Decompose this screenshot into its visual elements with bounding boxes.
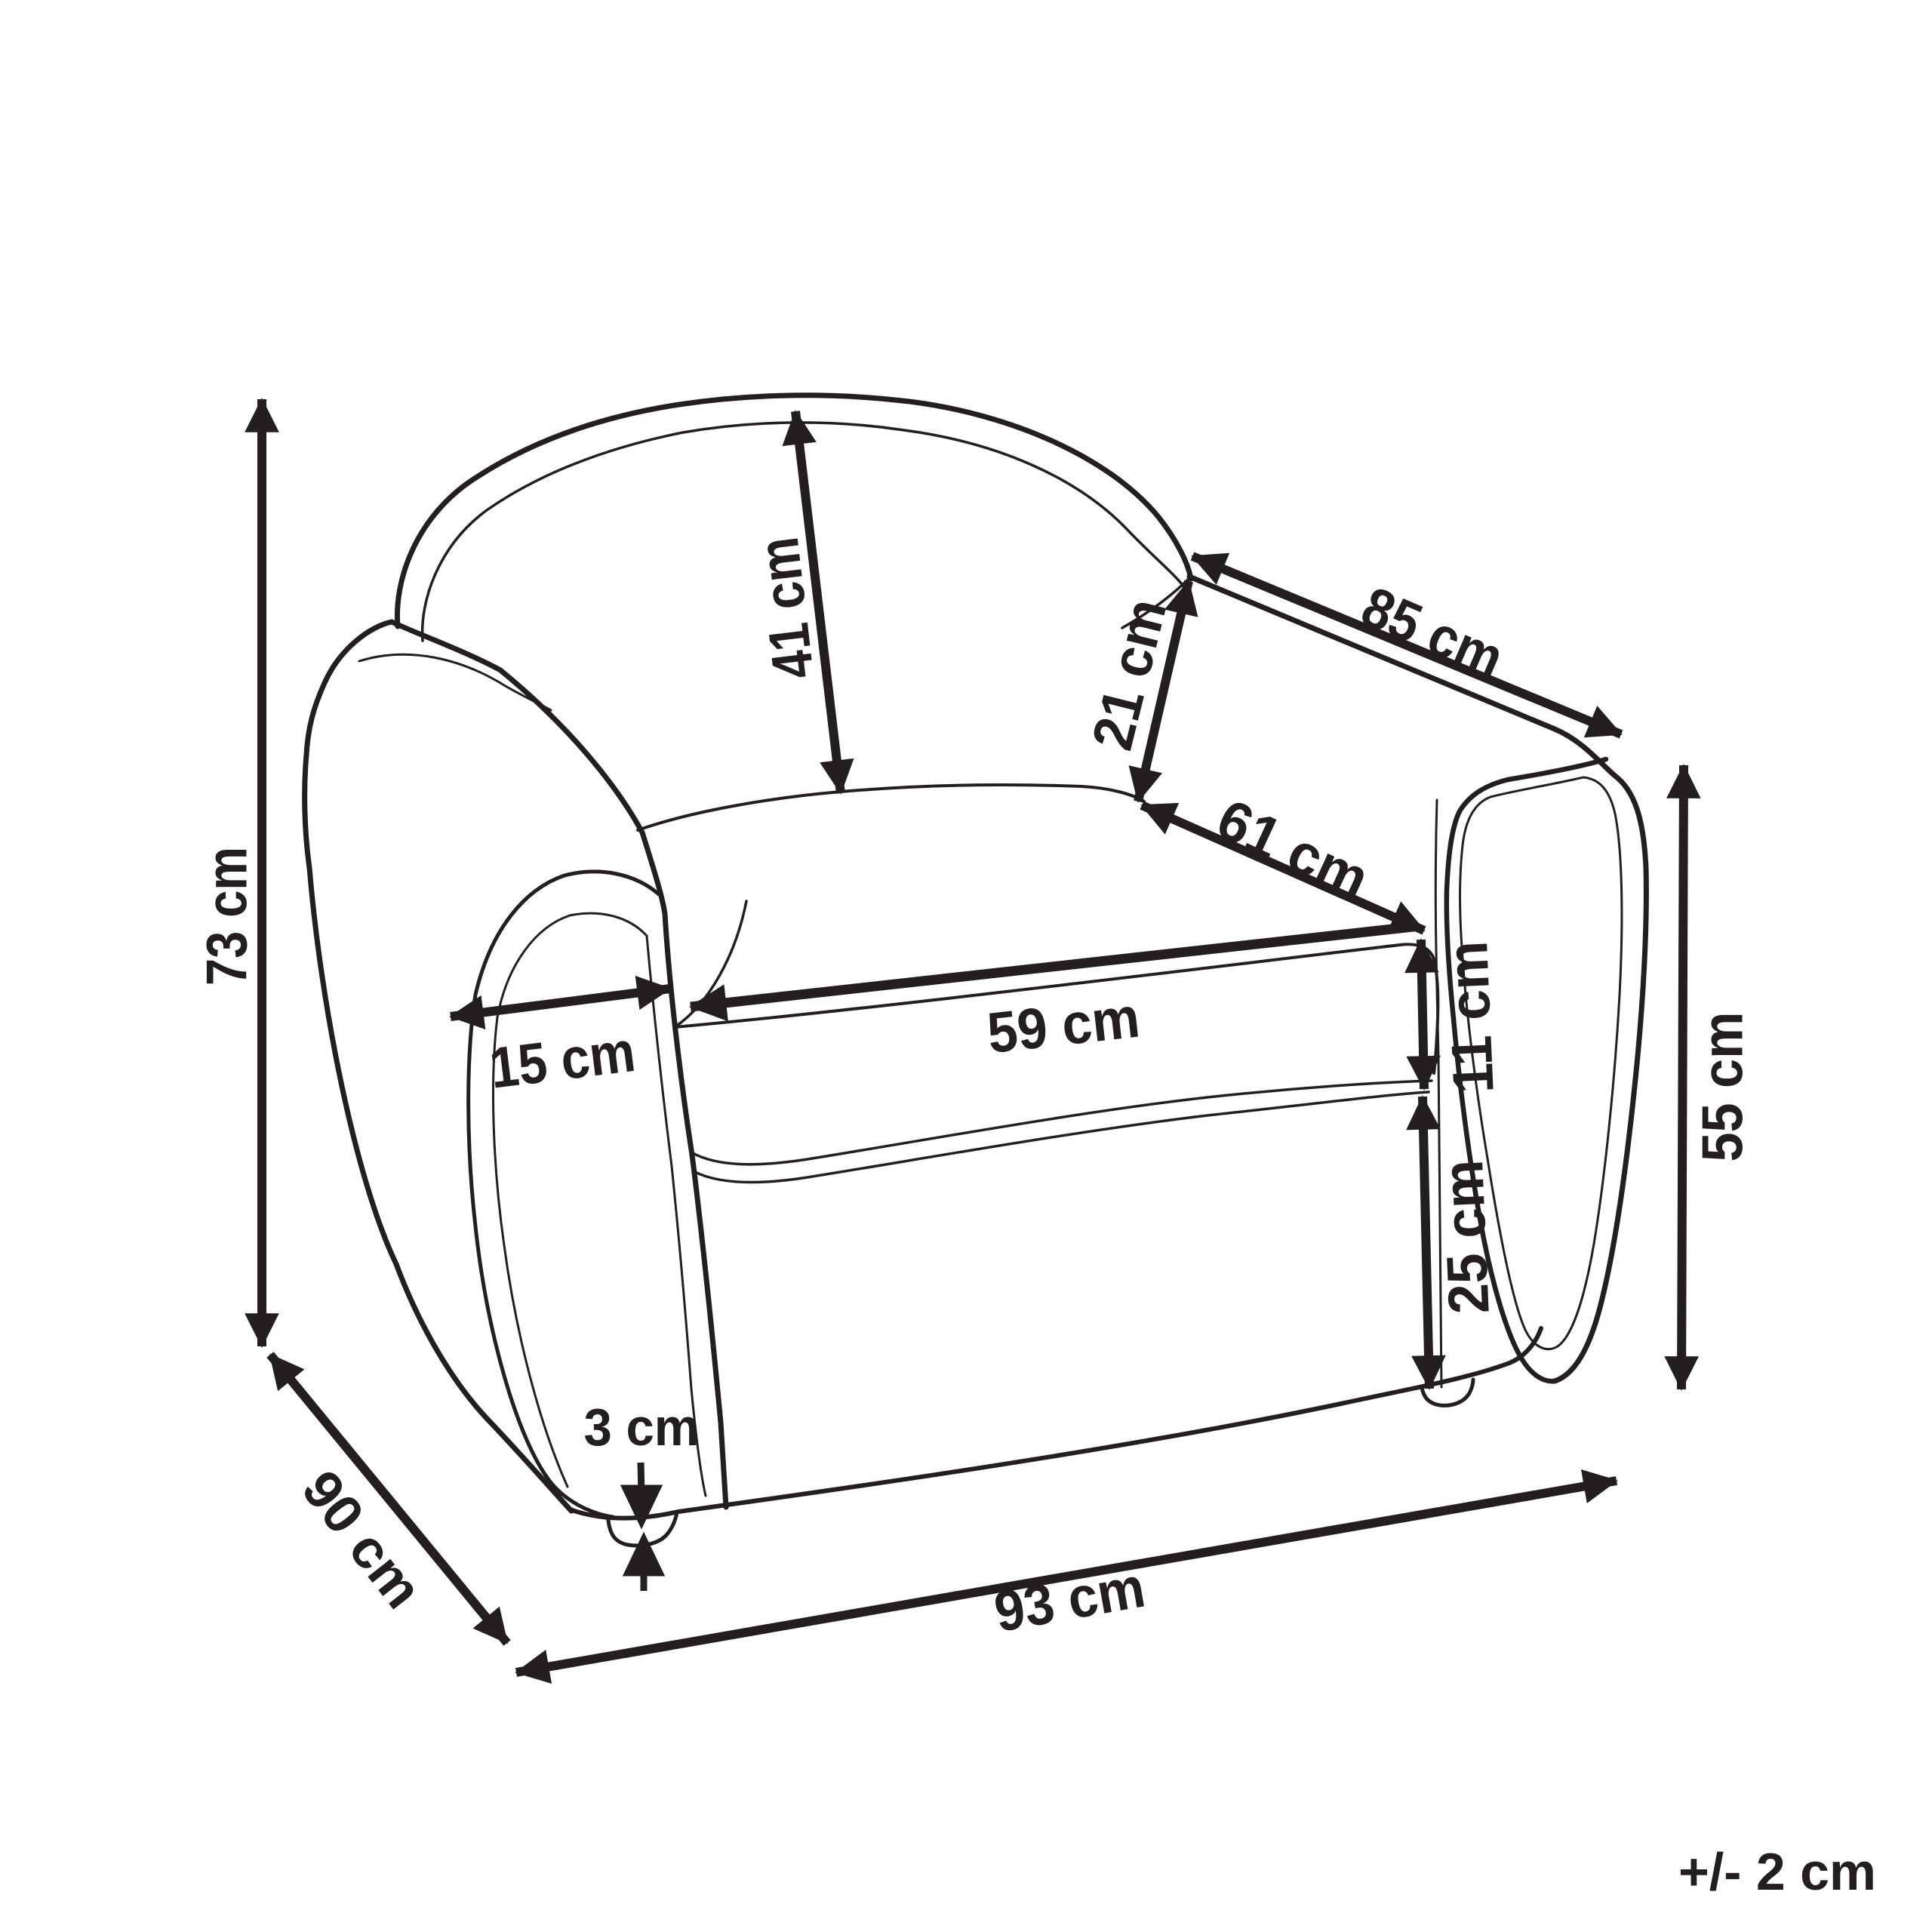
svg-text:55 cm: 55 cm [1690, 1012, 1755, 1162]
svg-text:3 cm: 3 cm [584, 1398, 700, 1457]
svg-text:25 cm: 25 cm [1431, 1158, 1502, 1315]
svg-text:73 cm: 73 cm [195, 847, 259, 986]
svg-text:11 cm: 11 cm [1435, 940, 1506, 1095]
svg-text:+/- 2 cm: +/- 2 cm [1678, 1842, 1876, 1901]
